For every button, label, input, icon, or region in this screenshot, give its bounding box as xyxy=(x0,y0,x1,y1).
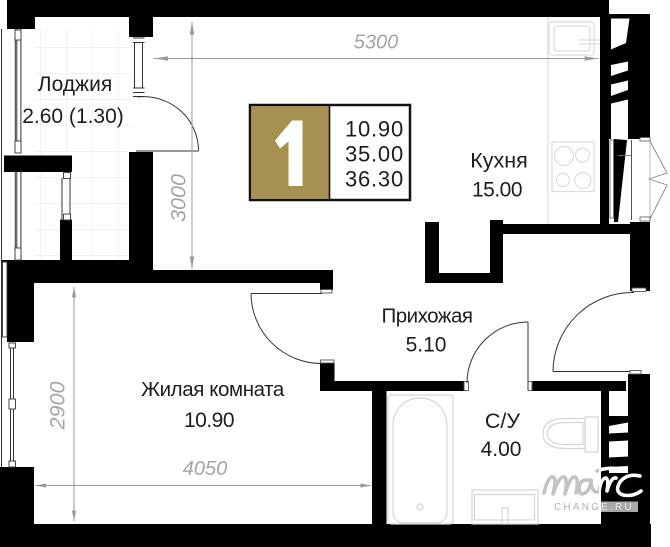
svg-text:15.00: 15.00 xyxy=(472,179,522,202)
svg-text:4050: 4050 xyxy=(183,458,228,480)
svg-text:Лоджия: Лоджия xyxy=(38,73,112,96)
svg-text:Жилая комната: Жилая комната xyxy=(141,378,285,401)
svg-text:С/У: С/У xyxy=(485,409,521,433)
svg-text:4.00: 4.00 xyxy=(481,438,522,461)
svg-text:3000: 3000 xyxy=(167,174,191,222)
svg-text:2900: 2900 xyxy=(46,382,70,431)
svg-text:Прихожая: Прихожая xyxy=(382,305,473,328)
svg-text:2.60 (1.30): 2.60 (1.30) xyxy=(22,105,124,128)
svg-text:Кухня: Кухня xyxy=(470,149,528,173)
svg-text:5.10: 5.10 xyxy=(406,334,447,357)
svg-text:10.90: 10.90 xyxy=(184,409,234,432)
svg-text:10.90: 10.90 xyxy=(345,117,404,142)
svg-text:5300: 5300 xyxy=(354,32,399,54)
svg-text:35.00: 35.00 xyxy=(345,142,404,167)
svg-text:36.30: 36.30 xyxy=(345,167,404,192)
